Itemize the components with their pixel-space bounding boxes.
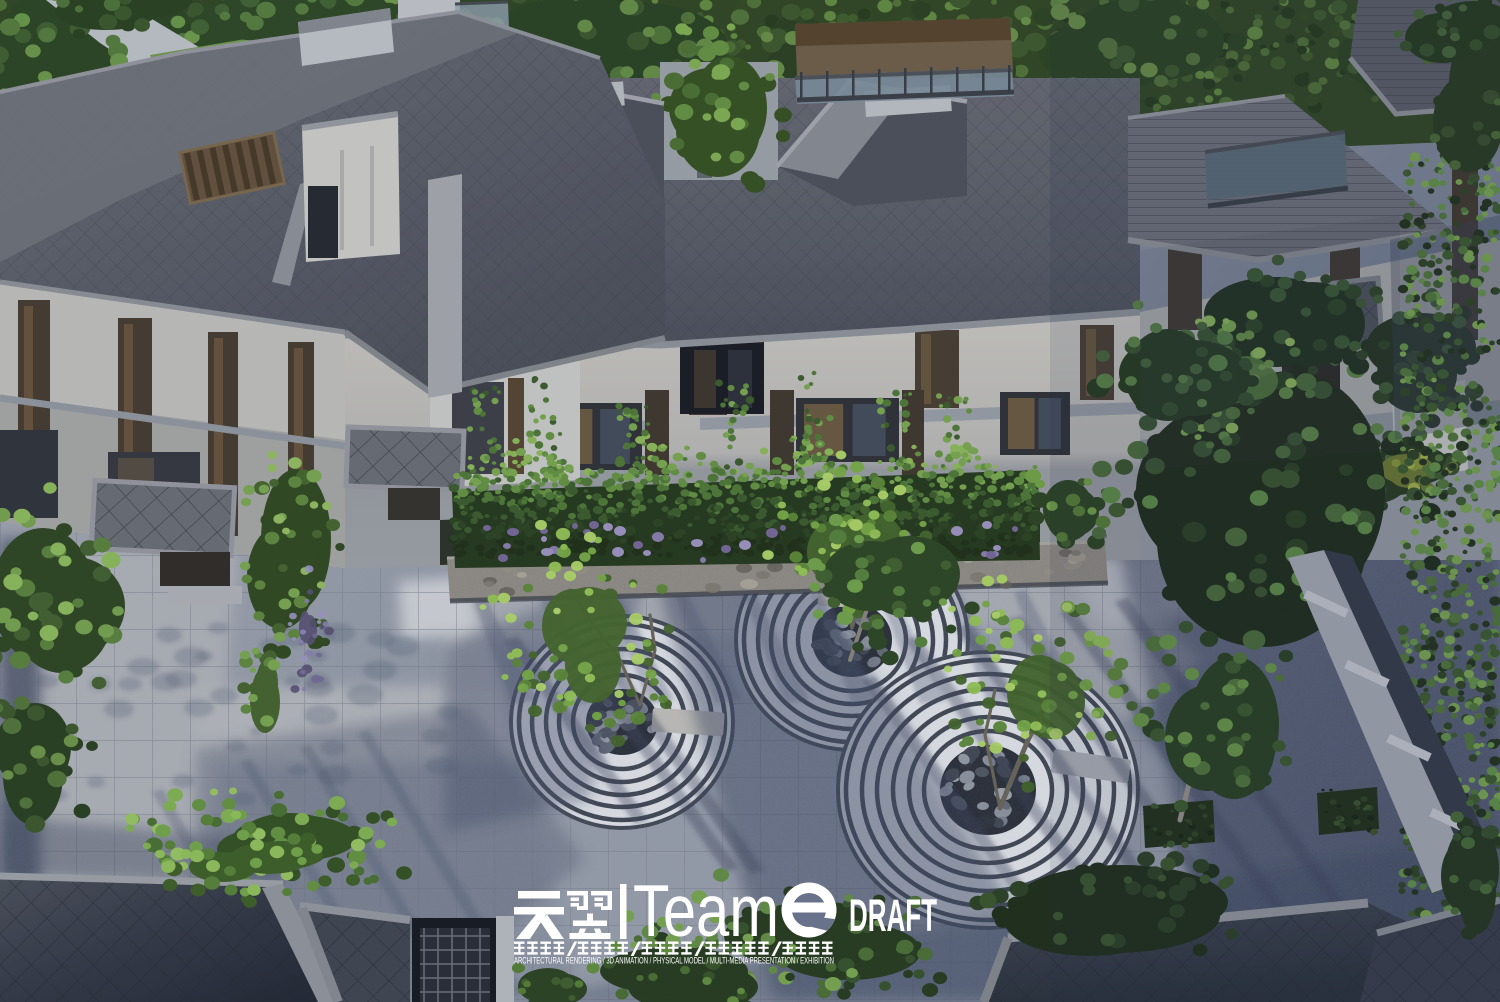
svg-text:Team: Team [633, 871, 779, 952]
svg-text:ARCHITECTURAL RENDERING / 3D A: ARCHITECTURAL RENDERING / 3D ANIMATION /… [514, 956, 834, 966]
svg-text:DRAFT: DRAFT [849, 890, 937, 941]
